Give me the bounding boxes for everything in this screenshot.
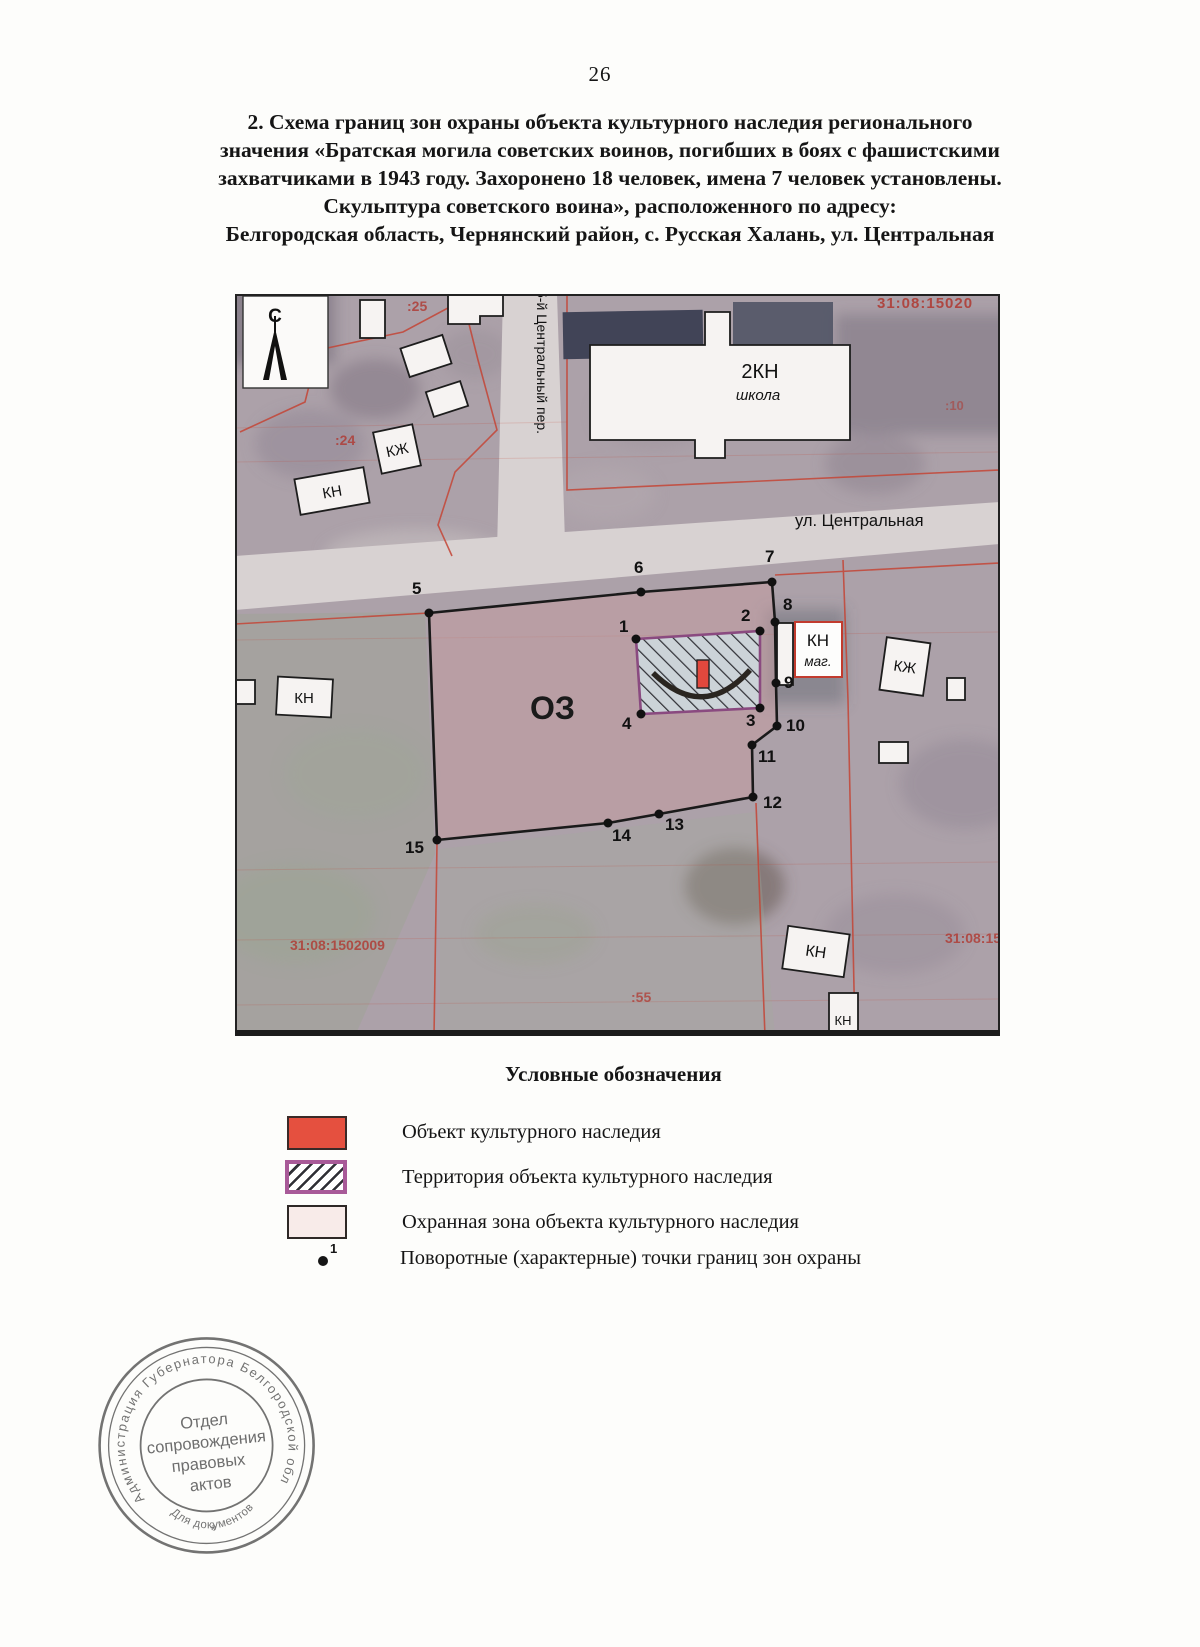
boundary-point-13 [655,810,664,819]
title-line-5: Белгородская область, Чернянский район, … [150,220,1070,248]
boundary-point-2 [756,627,765,636]
parcel-10-label: :10 [945,398,964,413]
kn-label-bottom-small: КН [835,1013,852,1028]
boundary-point-label-11: 11 [758,747,776,766]
zone-oz-label: ОЗ [530,690,575,726]
boundary-point-label-13: 13 [665,815,684,834]
boundary-point-6 [637,588,646,597]
boundary-point-label-3: 3 [746,711,755,730]
boundary-point-label-5: 5 [412,579,421,598]
boundary-point-8 [771,618,780,627]
boundary-point-label-8: 8 [783,595,792,614]
official-stamp: Администрация Губернатора Белгородской о… [80,1318,342,1580]
boundary-point-9 [772,679,781,688]
cadastral-bottom-right: 31:08:15 [945,930,1000,946]
kn-label-midleft: КН [294,690,314,707]
boundary-point-label-10: 10 [786,716,805,735]
legend-swatch-object [287,1116,347,1150]
kzh-label-right: КЖ [892,657,917,677]
cadastral-bottom-left: 31:08:1502009 [290,937,385,953]
parcel-55-label: :55 [631,989,651,1005]
legend-point-symbol-number: 1 [330,1241,337,1256]
legend-item-territory: Территория объекта культурного наследия [402,1166,773,1189]
boundary-point-10 [773,722,782,731]
title-line-2: значения «Братская могила советских воин… [150,136,1070,164]
legend-heading: Условные обозначения [505,1062,722,1087]
kn-label-left: КН [321,482,343,502]
boundary-point-label-15: 15 [405,838,424,857]
school-label-shkola: школа [736,387,780,404]
street-central-label: ул. Центральная [795,512,924,530]
shop-label-kn: КН [807,631,829,650]
site-plan-map: КН маг. КЖ КН КН КЖ КН КН 2КН школа ул. … [235,294,1000,1036]
page-number: 26 [0,62,1200,87]
north-arrow: С [243,296,328,388]
parcel-25-label: :25 [407,298,427,314]
boundary-point-1 [632,635,641,644]
boundary-point-15 [433,836,442,845]
legend-swatch-territory [285,1160,347,1194]
cadastral-top-right: 31:08:15020 [877,295,973,312]
legend-point-symbol [318,1256,328,1266]
boundary-point-label-4: 4 [622,714,632,733]
boundary-point-7 [768,578,777,587]
legend-item-points: Поворотные (характерные) точки границ зо… [400,1247,861,1270]
title-line-4: Скульптура советского воина», расположен… [150,192,1070,220]
boundary-point-label-2: 2 [741,606,750,625]
boundary-point-label-6: 6 [634,558,643,577]
boundary-point-label-7: 7 [765,547,774,566]
stamp-center-line-1: Отдел [179,1410,228,1433]
boundary-point-4 [637,710,646,719]
boundary-point-11 [748,741,757,750]
school-label-2kn: 2КН [741,361,778,383]
legend-swatch-protection-zone [287,1205,347,1239]
boundary-point-12 [749,793,758,802]
dark-roof-right [733,302,833,346]
boundary-point-label-1: 1 [619,617,628,636]
boundary-point-label-14: 14 [612,826,631,845]
document-page: 26 2. Схема границ зон охраны объекта ку… [0,0,1200,1647]
legend-item-protection-zone: Охранная зона объекта культурного наслед… [402,1211,799,1234]
boundary-point-label-9: 9 [784,673,793,692]
shop-label-mag: маг. [804,654,831,669]
stamp-center-line-4: актов [189,1473,233,1495]
boundary-point-3 [756,704,765,713]
legend-item-object: Объект культурного наследия [402,1121,661,1144]
stamp-center-line-3: правовых [171,1450,247,1476]
parcel-24-label: :24 [335,432,355,448]
document-title: 2. Схема границ зон охраны объекта культ… [150,108,1070,248]
stamp-center-line-2: сопровождения [146,1427,267,1457]
boundary-point-5 [425,609,434,618]
boundary-point-label-12: 12 [763,793,782,812]
street-lane-label: 5-й Центральный пер. [534,294,550,434]
heritage-object-marker [697,660,709,688]
kn-label-bottom-big: КН [804,943,827,963]
title-line-1: 2. Схема границ зон охраны объекта культ… [150,108,1070,136]
title-line-3: захватчиками в 1943 году. Захоронено 18 … [150,164,1070,192]
